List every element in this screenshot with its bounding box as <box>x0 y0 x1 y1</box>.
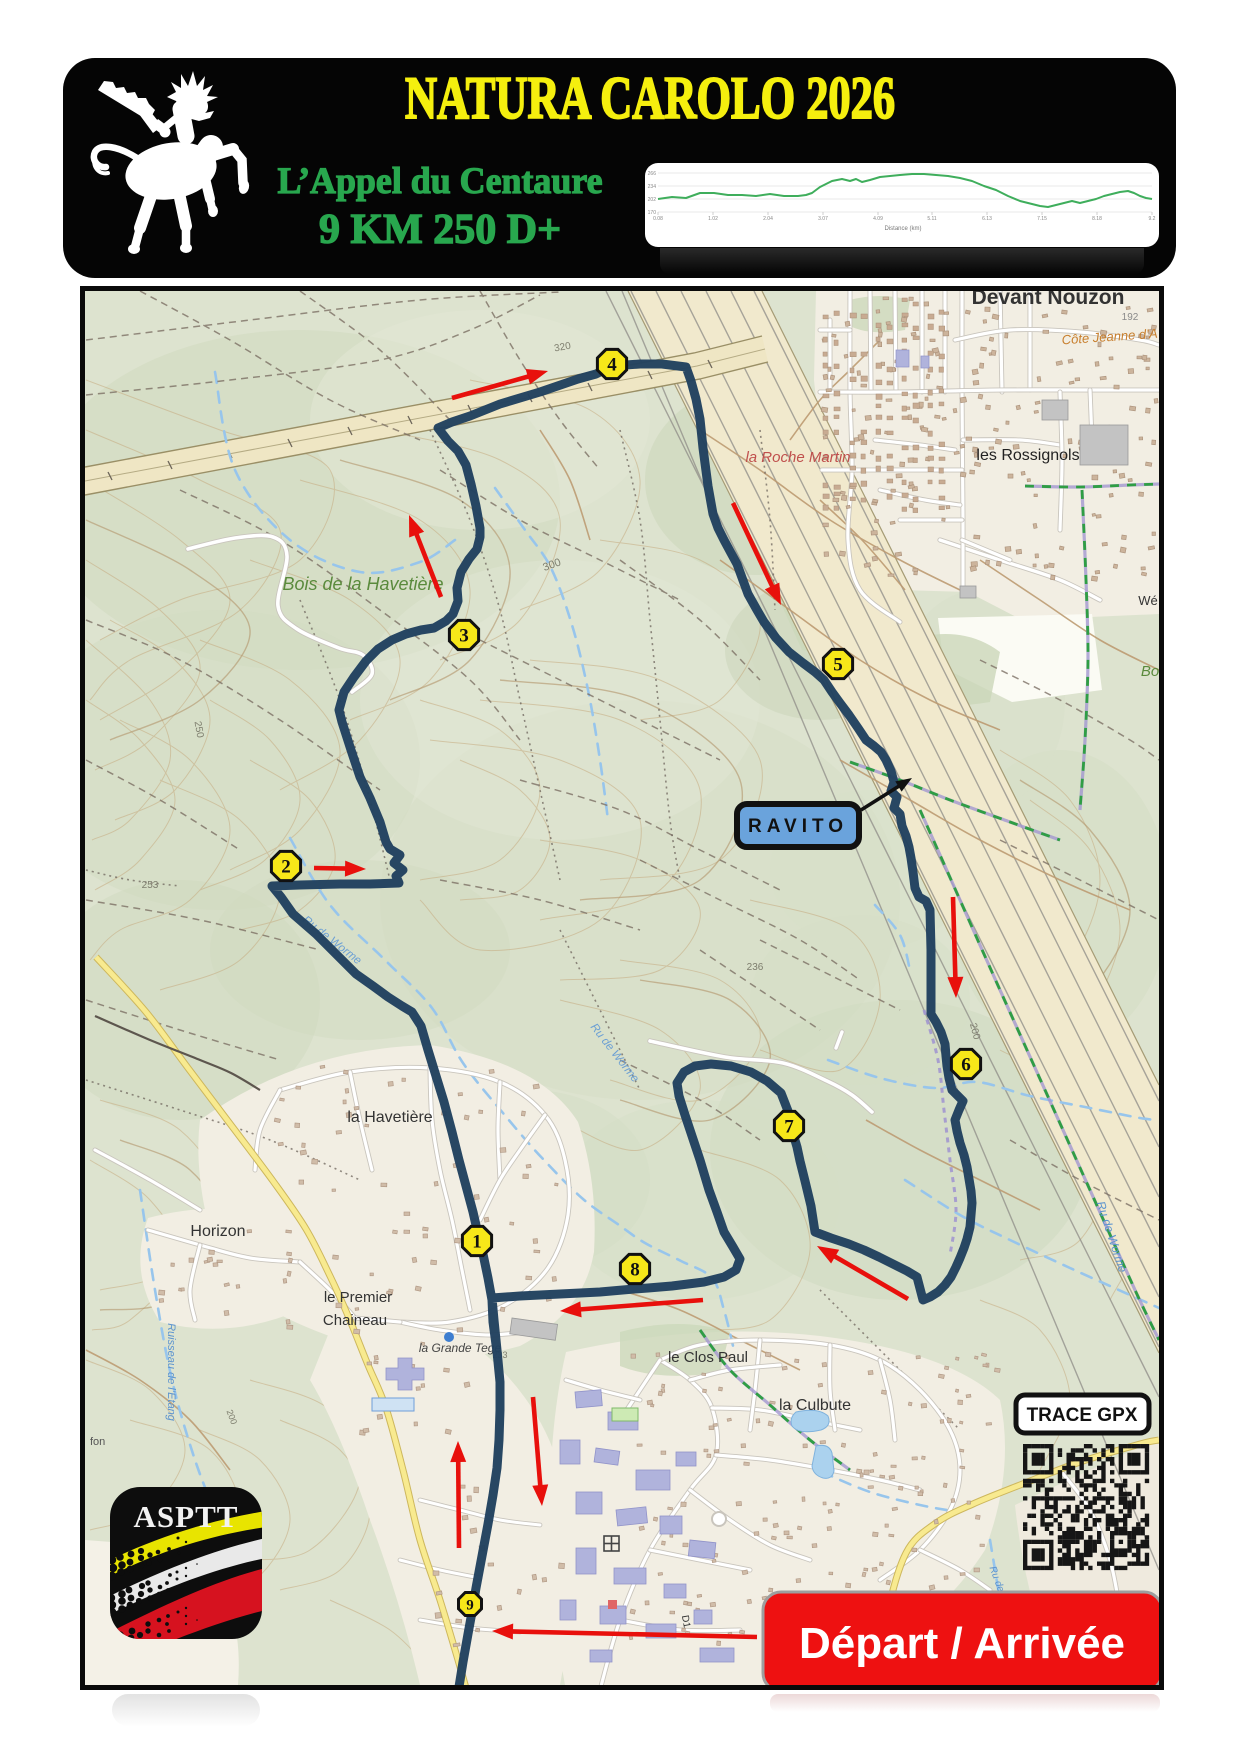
svg-text:Ruisseau de l’Etang: Ruisseau de l’Etang <box>165 1323 177 1422</box>
svg-text:3.07: 3.07 <box>818 216 828 222</box>
svg-text:5.11: 5.11 <box>927 216 937 222</box>
svg-text:7.15: 7.15 <box>1037 216 1047 222</box>
svg-text:253: 253 <box>142 880 159 891</box>
svg-text:Départ / Arrivée: Départ / Arrivée <box>799 1619 1125 1668</box>
svg-text:6: 6 <box>961 1055 971 1076</box>
svg-text:7: 7 <box>784 1117 794 1138</box>
svg-text:1.02: 1.02 <box>708 216 718 222</box>
svg-text:6.13: 6.13 <box>982 216 992 222</box>
svg-text:0.08: 0.08 <box>653 216 663 222</box>
svg-text:266: 266 <box>648 171 657 177</box>
svg-text:202: 202 <box>648 197 657 203</box>
svg-text:234: 234 <box>648 184 657 190</box>
svg-text:le Clos Paul: le Clos Paul <box>668 1349 748 1366</box>
svg-text:2: 2 <box>281 857 291 878</box>
svg-text:RAVITO: RAVITO <box>748 816 848 837</box>
svg-text:236: 236 <box>747 962 764 973</box>
svg-text:Horizon: Horizon <box>190 1223 245 1240</box>
svg-text:170: 170 <box>648 210 657 216</box>
svg-text:ASPTT: ASPTT <box>134 1499 239 1534</box>
svg-text:fon: fon <box>90 1436 105 1448</box>
svg-text:les Rossignols: les Rossignols <box>976 447 1079 464</box>
svg-text:la Havetière: la Havetière <box>347 1109 432 1126</box>
svg-text:la Roche Martin: la Roche Martin <box>745 449 850 466</box>
svg-text:Wé: Wé <box>1138 593 1158 608</box>
svg-text:Bo: Bo <box>1141 663 1159 680</box>
svg-text:3: 3 <box>459 626 469 647</box>
svg-text:Devant Nouzon: Devant Nouzon <box>972 291 1125 309</box>
svg-text:le Premier: le Premier <box>324 1289 392 1306</box>
svg-text:9: 9 <box>466 1597 474 1613</box>
svg-text:4: 4 <box>607 355 617 376</box>
svg-text:Bois de la Havetière: Bois de la Havetière <box>282 574 443 594</box>
svg-text:Chaineau: Chaineau <box>323 1312 387 1329</box>
svg-text:192: 192 <box>1122 312 1139 323</box>
svg-text:4.09: 4.09 <box>873 216 883 222</box>
svg-text:8.18: 8.18 <box>1092 216 1102 222</box>
svg-text:1: 1 <box>472 1232 482 1253</box>
svg-text:D1: D1 <box>679 1614 692 1629</box>
svg-text:TRACE GPX: TRACE GPX <box>1027 1405 1138 1426</box>
svg-text:la Grande Tege: la Grande Tege <box>419 1341 502 1355</box>
svg-text:la Culbute: la Culbute <box>779 1397 851 1414</box>
svg-text:5: 5 <box>833 655 843 676</box>
svg-text:8: 8 <box>630 1260 640 1281</box>
svg-text:9.2: 9.2 <box>1149 216 1156 222</box>
svg-text:Distance (km): Distance (km) <box>884 226 921 232</box>
svg-text:2.04: 2.04 <box>763 216 773 222</box>
